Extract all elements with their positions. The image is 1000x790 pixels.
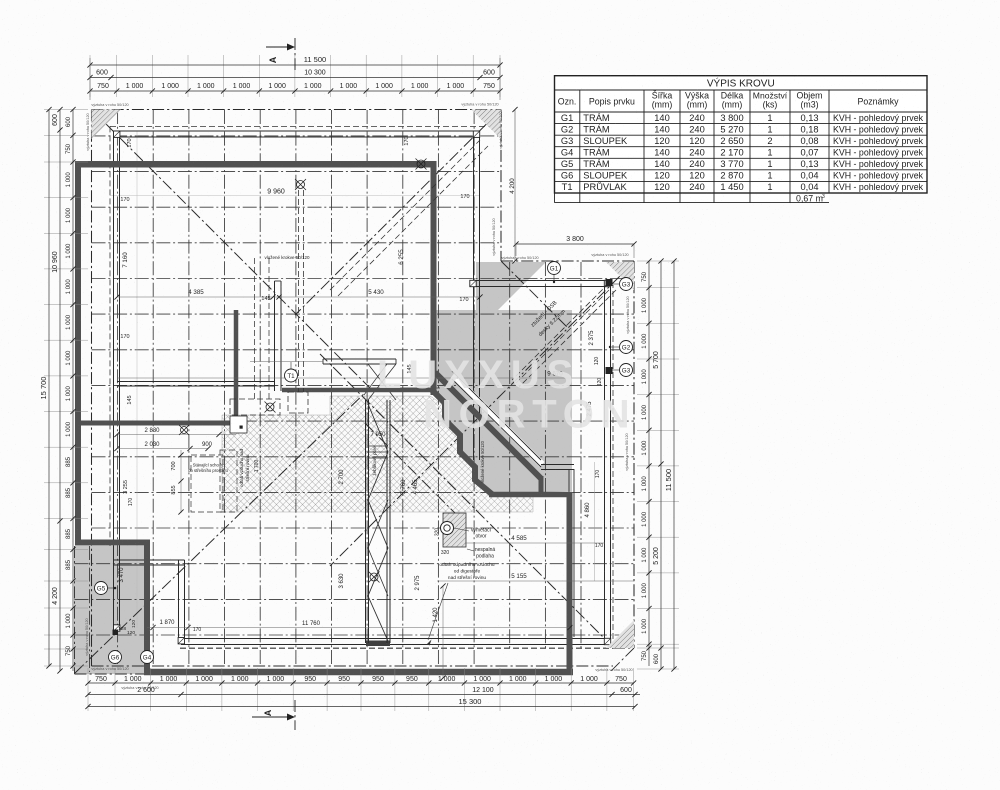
svg-text:LUXXUS: LUXXUS — [377, 353, 580, 397]
svg-text:NORTON: NORTON — [423, 393, 636, 437]
